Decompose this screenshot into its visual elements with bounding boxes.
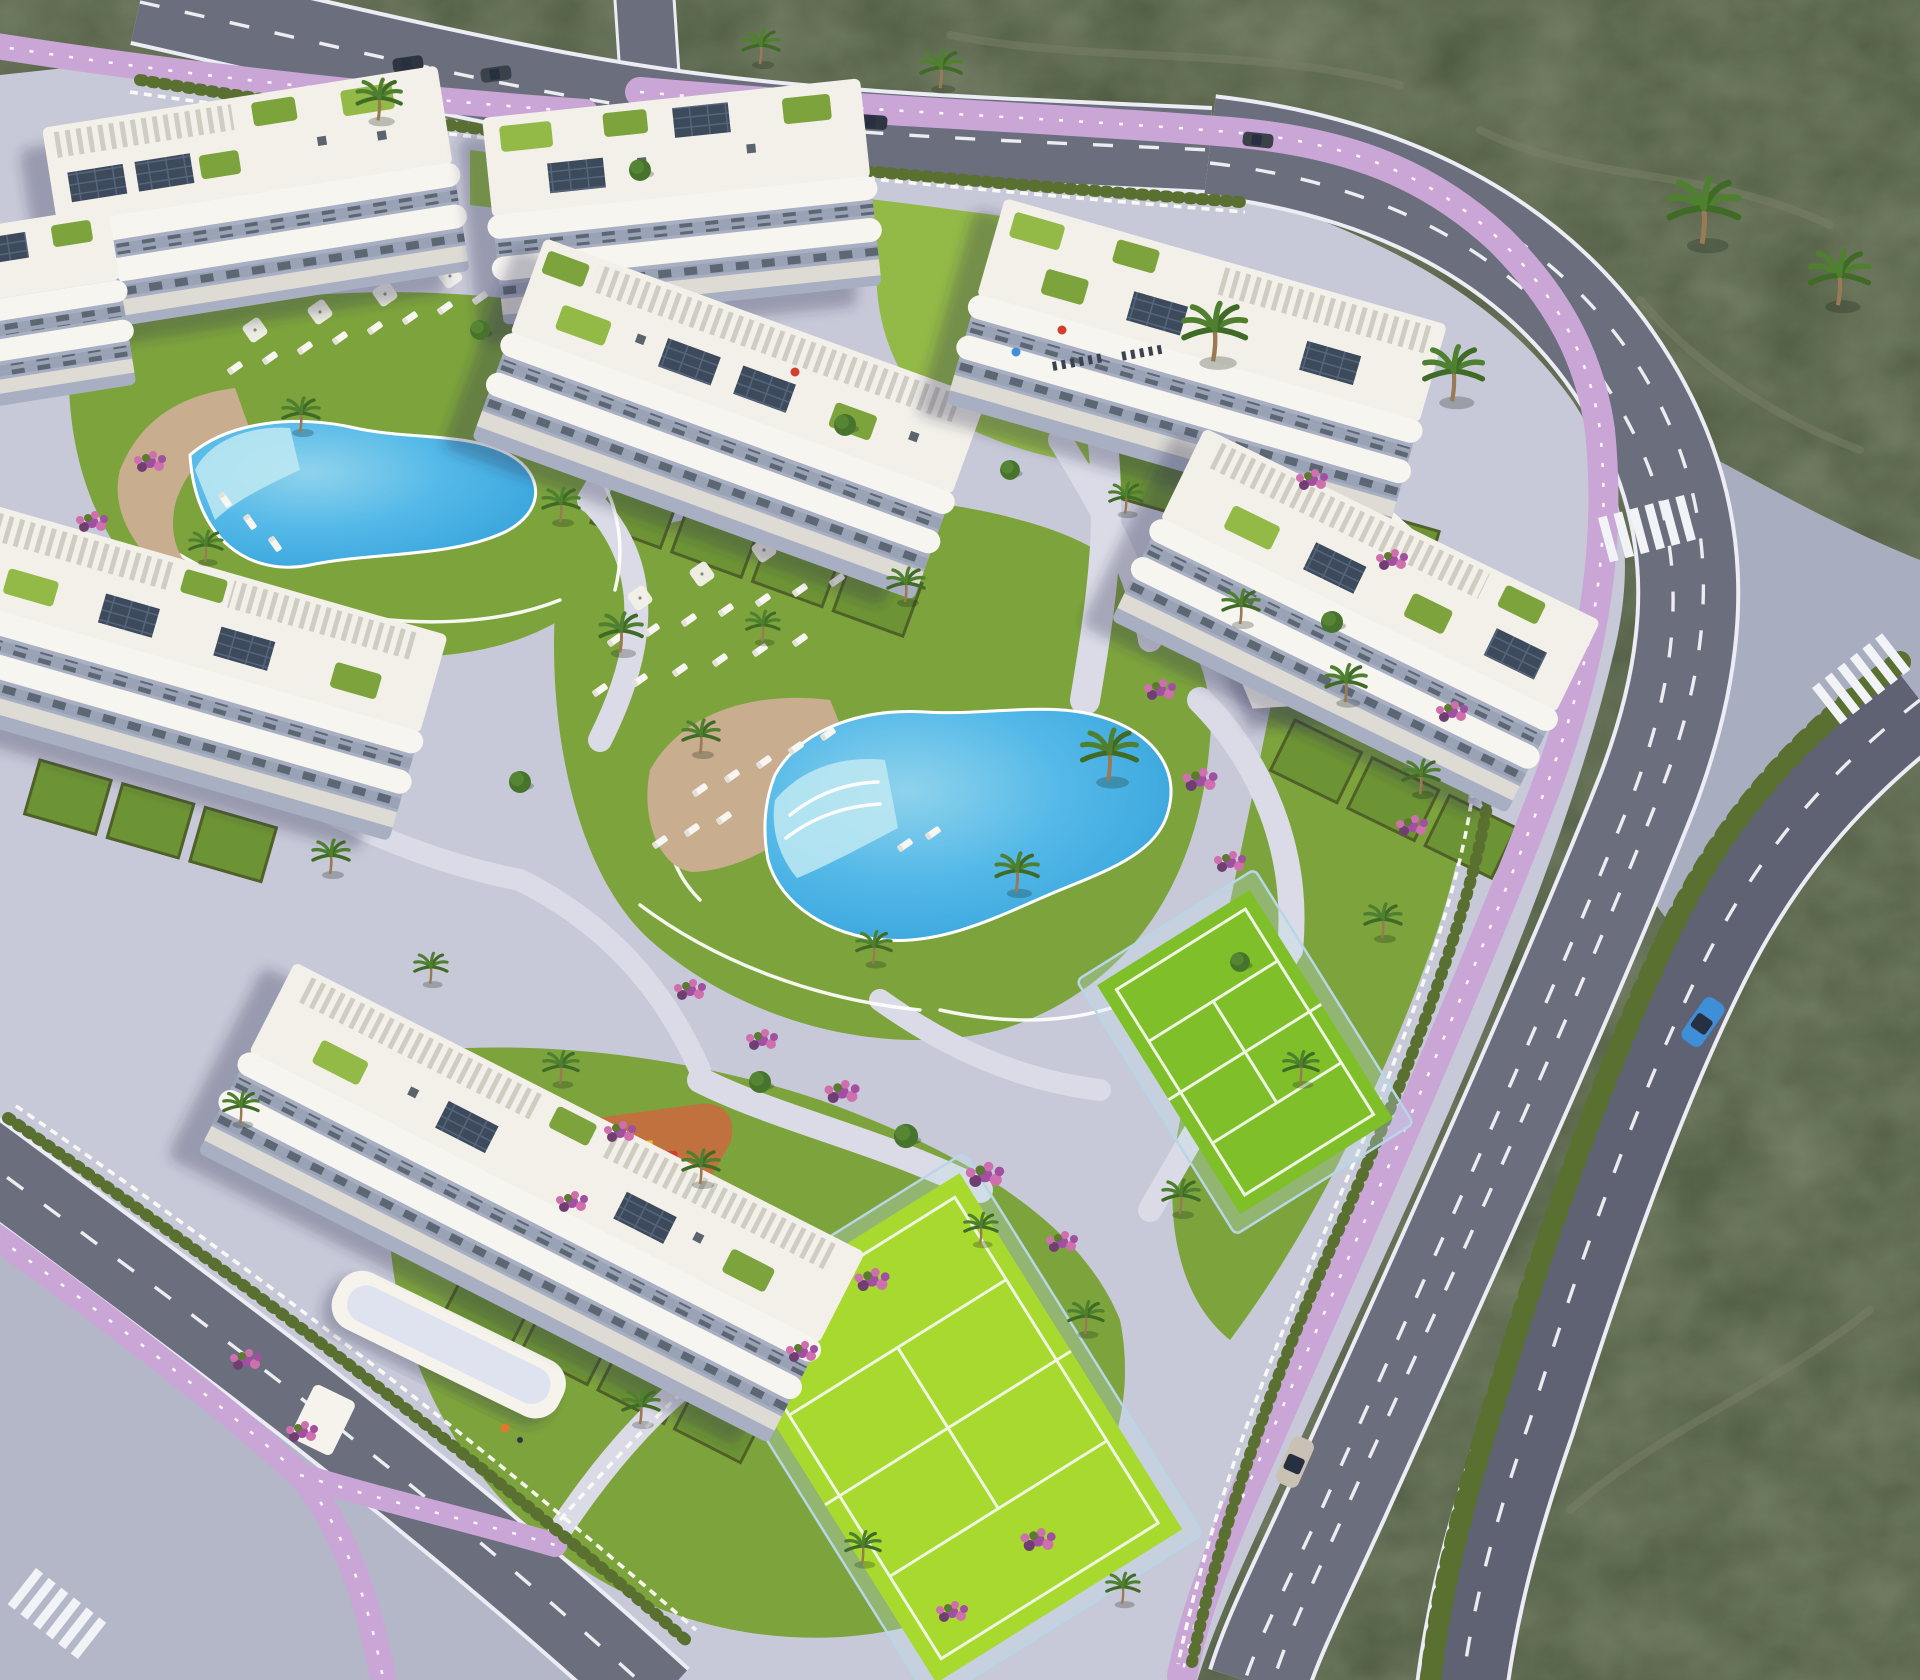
dog-walker xyxy=(501,1424,510,1433)
aerial-render: Aerial rendering of a gated residential … xyxy=(0,0,1920,1680)
scene-canvas: Aerial rendering of a gated residential … xyxy=(0,0,1920,1680)
dog xyxy=(517,1437,523,1443)
